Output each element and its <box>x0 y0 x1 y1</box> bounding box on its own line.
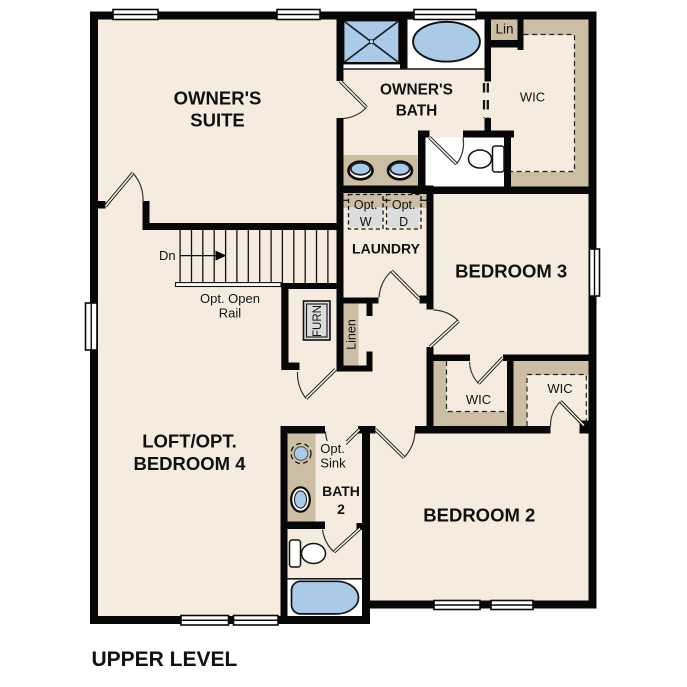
svg-text:Linen: Linen <box>344 319 358 350</box>
svg-text:BEDROOM 3: BEDROOM 3 <box>455 261 567 282</box>
svg-text:BATH: BATH <box>396 102 438 119</box>
svg-text:2: 2 <box>337 501 345 517</box>
svg-text:Lin: Lin <box>495 22 513 37</box>
svg-text:BEDROOM 4: BEDROOM 4 <box>133 453 246 474</box>
svg-text:Opt.: Opt. <box>354 198 378 212</box>
svg-text:Dn: Dn <box>159 248 176 263</box>
svg-text:LOFT/OPT.: LOFT/OPT. <box>142 431 237 452</box>
svg-text:OWNER'S: OWNER'S <box>380 82 453 99</box>
svg-text:Opt. Open: Opt. Open <box>200 291 260 306</box>
svg-text:UPPER LEVEL: UPPER LEVEL <box>92 648 238 671</box>
svg-text:FURN: FURN <box>312 305 324 337</box>
svg-text:LAUNDRY: LAUNDRY <box>352 240 421 256</box>
svg-text:BATH: BATH <box>322 483 360 499</box>
svg-text:OWNER'S: OWNER'S <box>174 88 262 109</box>
svg-text:WIC: WIC <box>520 90 545 105</box>
svg-text:WIC: WIC <box>547 381 572 396</box>
svg-text:Opt.: Opt. <box>320 441 345 456</box>
svg-text:D: D <box>399 215 408 229</box>
svg-text:W: W <box>360 215 372 229</box>
svg-text:Rail: Rail <box>219 306 242 321</box>
svg-text:Opt.: Opt. <box>392 198 416 212</box>
svg-text:BEDROOM 2: BEDROOM 2 <box>423 505 535 526</box>
svg-text:WIC: WIC <box>466 392 491 407</box>
svg-text:Sink: Sink <box>320 456 346 471</box>
svg-text:SUITE: SUITE <box>190 110 244 131</box>
